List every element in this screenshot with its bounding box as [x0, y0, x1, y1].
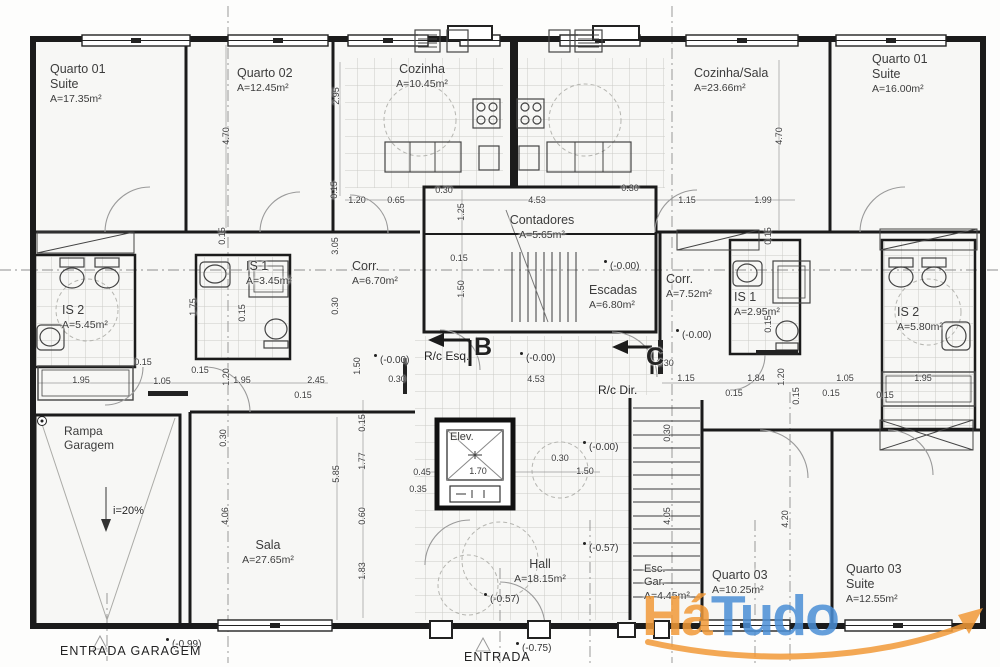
- dimension-label: 1.20: [221, 368, 231, 386]
- room-area: A=27.65m²: [242, 554, 294, 566]
- floor-plan-canvas: Quarto 01 SuiteA=17.35m²Quarto 02A=12.45…: [0, 0, 1000, 667]
- dimension-label: 1.15: [677, 373, 695, 383]
- dimension-label: 1.95: [72, 375, 90, 385]
- room-name: Quarto 02: [237, 66, 293, 81]
- room-name: Corr.: [666, 272, 712, 287]
- dimension-label: 0.65: [387, 195, 405, 205]
- dimension-label: 1.25: [456, 203, 466, 221]
- room-label: Quarto 01 SuiteA=16.00m²: [872, 52, 928, 95]
- dimension-label: 1.77: [357, 452, 367, 470]
- room-area: A=5.65m²: [510, 229, 575, 241]
- label-layer: Quarto 01 SuiteA=17.35m²Quarto 02A=12.45…: [0, 0, 1000, 667]
- elevation-label: (-0.00): [676, 329, 711, 341]
- room-area: A=3.45m²: [246, 275, 292, 287]
- room-name: Cozinha/Sala: [694, 66, 768, 81]
- room-label: Corr.A=7.52m²: [666, 272, 712, 300]
- room-label: IS 1A=3.45m²: [246, 259, 292, 287]
- dimension-label: 0.15: [450, 253, 468, 263]
- dimension-label: 0.35: [409, 484, 427, 494]
- dimension-label: 0.30: [662, 424, 672, 442]
- dimension-label: 1.50: [456, 280, 466, 298]
- room-name: Cozinha: [396, 62, 448, 77]
- room-label: Cozinha/SalaA=23.66m²: [694, 66, 768, 94]
- room-area: A=6.70m²: [352, 275, 398, 287]
- room-label: IS 2A=5.45m²: [62, 303, 108, 331]
- dimension-label: 0.15: [822, 388, 840, 398]
- dimension-label: 4.70: [774, 127, 784, 145]
- dimension-label: 4.53: [528, 195, 546, 205]
- elevation-label: (-0.00): [583, 441, 618, 453]
- room-name: IS 1: [734, 290, 780, 305]
- room-area: A=6.80m²: [589, 299, 637, 311]
- room-name: Sala: [242, 538, 294, 553]
- dimension-label: 4.20: [780, 510, 790, 528]
- dimension-label: 0.15: [294, 390, 312, 400]
- room-label: SalaA=27.65m²: [242, 538, 294, 566]
- annotation-c: C: [646, 343, 664, 372]
- room-name: Hall: [514, 557, 566, 572]
- logo-text-tudo: Tudo: [711, 584, 838, 648]
- dimension-label: 1.05: [153, 376, 171, 386]
- room-name: Quarto 01 Suite: [50, 62, 106, 92]
- dimension-label: 4.53: [527, 374, 545, 384]
- dimension-label: 1.99: [754, 195, 772, 205]
- room-name: Rampa Garagem: [64, 424, 114, 452]
- room-name: Quarto 03: [712, 568, 768, 583]
- room-area: A=10.45m²: [396, 78, 448, 90]
- annotation-entrada-garagem: ENTRADA GARAGEM: [60, 644, 201, 658]
- dimension-label: 0.15: [329, 181, 339, 199]
- dimension-label: 1.50: [576, 466, 594, 476]
- dimension-label: 1.84: [747, 373, 765, 383]
- dimension-label: 1.15: [678, 195, 696, 205]
- dimension-label: 1.20: [348, 195, 366, 205]
- room-label: Corr.A=6.70m²: [352, 259, 398, 287]
- room-area: A=12.45m²: [237, 82, 293, 94]
- dimension-label: 5.85: [331, 465, 341, 483]
- room-area: A=17.35m²: [50, 93, 106, 105]
- dimension-label: 0.15: [237, 304, 247, 322]
- logo-text-ha: Há: [642, 584, 711, 648]
- room-name: Corr.: [352, 259, 398, 274]
- annotation-r-c-dir-: R/c Dir.: [598, 383, 637, 397]
- room-label: Rampa Garagem: [64, 424, 114, 452]
- dimension-label: 0.30: [330, 297, 340, 315]
- dimension-label: 3.05: [330, 237, 340, 255]
- dimension-label: 1.75: [188, 298, 198, 316]
- room-label: Quarto 02A=12.45m²: [237, 66, 293, 94]
- elevation-label: (-0.57): [484, 593, 519, 605]
- room-label: CozinhaA=10.45m²: [396, 62, 448, 90]
- room-label: Elev.: [450, 431, 474, 444]
- dimension-label: 1.20: [776, 368, 786, 386]
- dimension-label: 4.70: [221, 127, 231, 145]
- dimension-label: 1.83: [357, 562, 367, 580]
- room-area: A=23.66m²: [694, 82, 768, 94]
- room-name: Quarto 01 Suite: [872, 52, 928, 82]
- dimension-label: 0.15: [791, 387, 801, 405]
- hatudo-logo: HáTudo: [640, 586, 990, 667]
- dimension-label: 0.15: [217, 227, 227, 245]
- dimension-label: 0.30: [218, 429, 228, 447]
- room-area: A=5.45m²: [62, 319, 108, 331]
- dimension-label: 0.15: [357, 414, 367, 432]
- dimension-label: 1.95: [233, 375, 251, 385]
- dimension-label: 0.60: [357, 507, 367, 525]
- dimension-label: 0.30: [388, 374, 406, 384]
- room-name: IS 1: [246, 259, 292, 274]
- annotation-r-c-esq-: R/c Esq.: [424, 349, 469, 363]
- annotation-b: B: [474, 333, 492, 362]
- dimension-label: 2.45: [307, 375, 325, 385]
- room-name: IS 2: [62, 303, 108, 318]
- room-label: HallA=18.15m²: [514, 557, 566, 585]
- dimension-label: 1.95: [914, 373, 932, 383]
- dimension-label: 2.95: [331, 87, 341, 105]
- dimension-label: 0.15: [191, 365, 209, 375]
- room-name: Contadores: [510, 213, 575, 228]
- room-name: IS 2: [897, 305, 943, 320]
- dimension-label: 0.45: [413, 467, 431, 477]
- dimension-label: 1.50: [352, 357, 362, 375]
- annotation-entrada: ENTRADA: [464, 650, 531, 664]
- dimension-label: 4.05: [662, 507, 672, 525]
- dimension-label: 0.15: [763, 227, 773, 245]
- dimension-label: 4.06: [220, 507, 230, 525]
- elevation-label: (-0.00): [374, 354, 409, 366]
- dimension-label: 0.15: [134, 357, 152, 367]
- dimension-label: 0.30: [621, 183, 639, 193]
- elevation-label: (-0.00): [520, 352, 555, 364]
- room-label: Quarto 01 SuiteA=17.35m²: [50, 62, 106, 105]
- room-area: A=16.00m²: [872, 83, 928, 95]
- room-area: A=7.52m²: [666, 288, 712, 300]
- room-label: EscadasA=6.80m²: [589, 283, 637, 311]
- dimension-label: 1.70: [469, 466, 487, 476]
- room-name: Escadas: [589, 283, 637, 298]
- elevation-label: (-0.57): [583, 542, 618, 554]
- dimension-label: 0.30: [435, 185, 453, 195]
- room-name: Elev.: [450, 431, 474, 444]
- room-label: ContadoresA=5.65m²: [510, 213, 575, 241]
- dimension-label: 0.15: [725, 388, 743, 398]
- dimension-label: 0.15: [763, 315, 773, 333]
- dimension-label: 0.15: [876, 390, 894, 400]
- room-label: IS 2A=5.80m²: [897, 305, 943, 333]
- dimension-label: 1.05: [836, 373, 854, 383]
- dimension-label: 0.30: [551, 453, 569, 463]
- room-area: A=5.80m²: [897, 321, 943, 333]
- annotation-i-20-: i=20%: [113, 505, 144, 517]
- elevation-label: (-0.00): [604, 260, 639, 272]
- room-area: A=18.15m²: [514, 573, 566, 585]
